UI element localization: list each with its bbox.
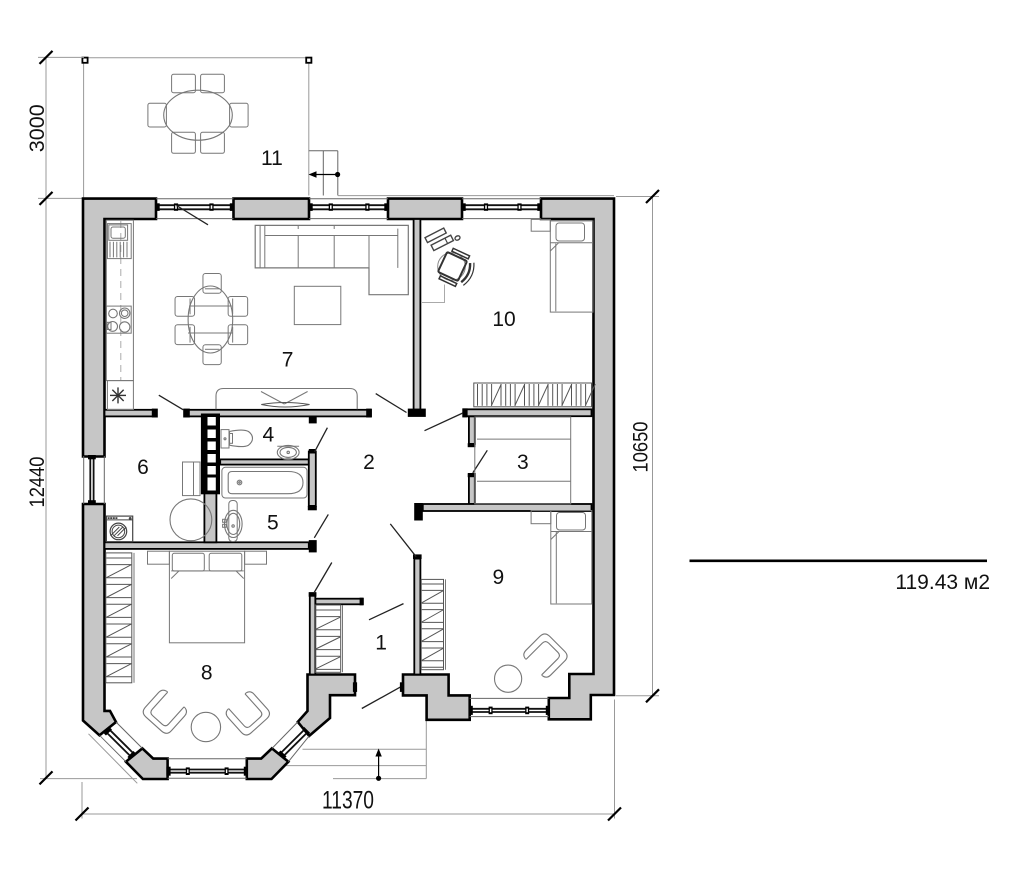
- svg-text:11: 11: [261, 147, 283, 170]
- svg-text:11370: 11370: [322, 787, 374, 815]
- svg-text:4: 4: [263, 424, 275, 447]
- svg-text:10650: 10650: [630, 422, 653, 473]
- svg-text:3: 3: [517, 451, 529, 474]
- svg-text:6: 6: [137, 456, 149, 479]
- svg-text:3000: 3000: [26, 104, 49, 152]
- svg-text:10: 10: [492, 308, 515, 331]
- svg-text:5: 5: [267, 512, 279, 535]
- svg-text:7: 7: [282, 348, 294, 371]
- svg-text:8: 8: [201, 661, 213, 684]
- svg-text:2: 2: [363, 451, 375, 474]
- svg-text:1: 1: [375, 631, 387, 654]
- svg-text:119.43 м2: 119.43 м2: [895, 571, 990, 594]
- svg-text:12440: 12440: [26, 457, 49, 508]
- svg-text:9: 9: [492, 566, 504, 589]
